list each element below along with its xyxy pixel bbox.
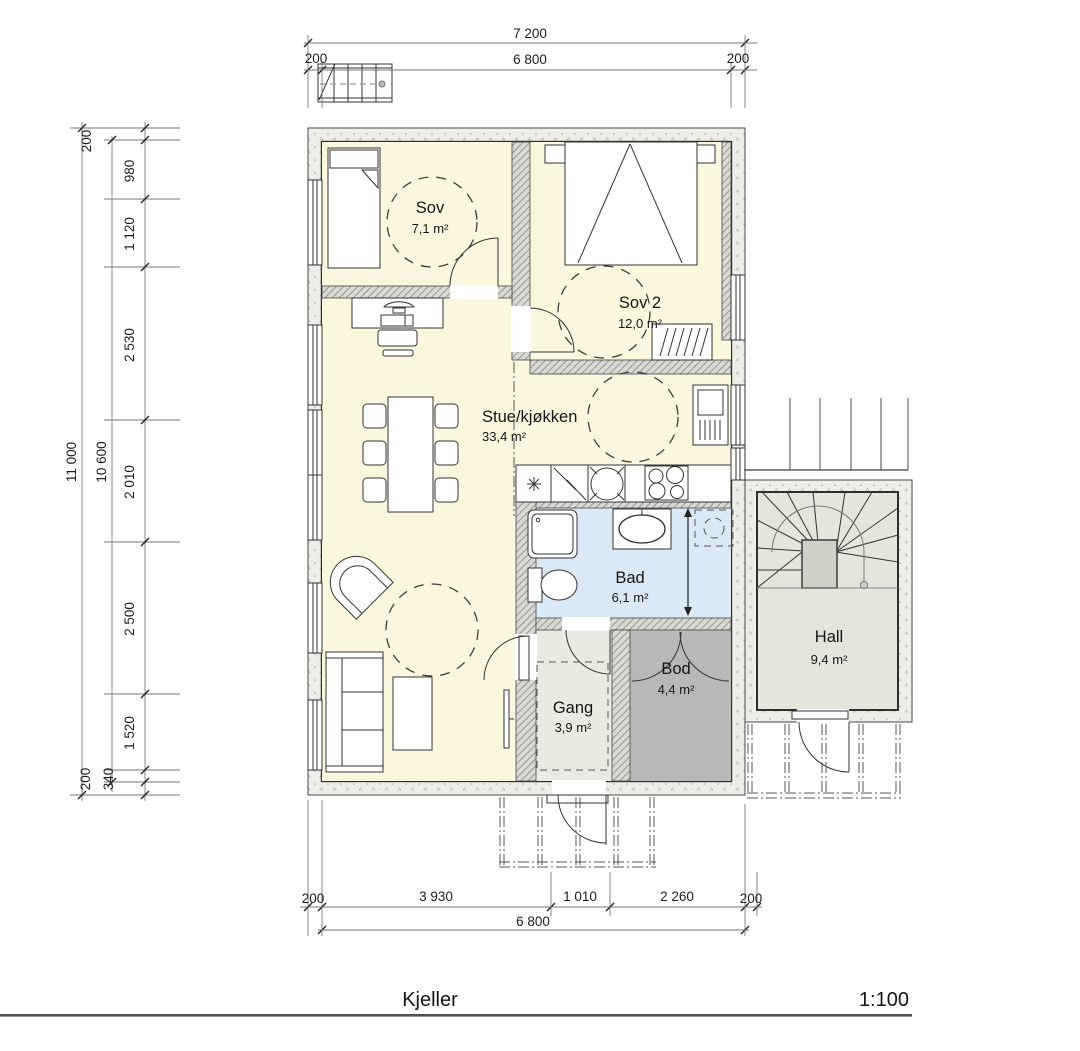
fridge-icon xyxy=(693,385,728,445)
svg-text:200: 200 xyxy=(302,891,325,906)
window xyxy=(731,275,745,340)
dim-top-overall: 7 200 xyxy=(513,26,547,41)
window xyxy=(308,583,322,653)
room-sov2-label: Sov 2 xyxy=(619,294,661,312)
room-gang-area: 3,9 m² xyxy=(555,720,593,735)
freezer-icon xyxy=(527,477,541,491)
title-rule xyxy=(0,1014,912,1017)
svg-text:2 530: 2 530 xyxy=(122,328,137,362)
window xyxy=(308,325,322,405)
dim-left-overall: 11 000 xyxy=(64,442,79,482)
svg-text:980: 980 xyxy=(122,160,137,183)
kitchen-counter xyxy=(516,465,731,502)
room-sov-area: 7,1 m² xyxy=(412,221,450,236)
svg-text:2 260: 2 260 xyxy=(660,889,694,904)
single-bed xyxy=(328,148,380,268)
svg-text:340: 340 xyxy=(101,768,116,791)
svg-text:3 930: 3 930 xyxy=(419,889,453,904)
room-bad-label: Bad xyxy=(615,569,644,587)
room-bod-label: Bod xyxy=(661,660,690,678)
svg-text:200: 200 xyxy=(740,891,763,906)
toilet-icon xyxy=(528,568,577,602)
svg-text:2 010: 2 010 xyxy=(122,465,137,499)
svg-text:200: 200 xyxy=(78,768,93,791)
svg-text:200: 200 xyxy=(79,130,94,153)
door-swing xyxy=(547,795,608,845)
room-bod-area: 4,4 m² xyxy=(658,682,696,697)
svg-text:1 520: 1 520 xyxy=(122,716,137,750)
room-stue-area: 33,4 m² xyxy=(482,429,527,444)
window xyxy=(308,700,322,770)
dim-bottom-inner: 6 800 xyxy=(516,914,550,929)
svg-text:1 120: 1 120 xyxy=(122,217,137,251)
window xyxy=(731,448,745,480)
sheet-scale: 1:100 xyxy=(859,989,909,1011)
sheet-title: Kjeller xyxy=(402,989,458,1011)
room-bad-area: 6,1 m² xyxy=(612,590,650,605)
sofa xyxy=(326,652,383,772)
room-gang-label: Gang xyxy=(553,699,593,717)
dining-table xyxy=(363,397,458,512)
room-stue-label: Stue/kjøkken xyxy=(482,408,577,426)
deck-above-hall xyxy=(744,398,908,470)
window xyxy=(308,410,322,540)
sink-vanity-icon xyxy=(613,509,671,549)
window xyxy=(731,385,745,445)
stove-icon xyxy=(645,466,688,500)
dim-left-inner: 10 600 xyxy=(94,441,109,482)
room-hall-label: Hall xyxy=(815,628,843,646)
floor-plan-sheet: 7 200 200 6 800 200 11 000 10 600 200 98… xyxy=(0,0,1080,1051)
shower-icon xyxy=(528,510,577,558)
svg-text:1 010: 1 010 xyxy=(563,889,597,904)
room-hall-floor xyxy=(757,492,898,710)
svg-text:2 500: 2 500 xyxy=(122,602,137,636)
room-sov-label: Sov xyxy=(416,199,445,217)
dim-top-inner: 6 800 xyxy=(513,52,547,67)
dim-top-left: 200 xyxy=(305,51,328,66)
double-bed xyxy=(545,142,715,265)
porch-front xyxy=(499,797,656,867)
title-block: Kjeller 1:100 xyxy=(0,989,912,1017)
porch-hall xyxy=(747,724,901,798)
room-hall-area: 9,4 m² xyxy=(811,652,849,667)
dim-top-right: 200 xyxy=(727,51,750,66)
window xyxy=(308,180,322,265)
coffee-table xyxy=(393,677,432,750)
floor-plan-drawing: 7 200 200 6 800 200 11 000 10 600 200 98… xyxy=(0,0,1080,1051)
room-bod-floor xyxy=(630,630,731,781)
room-sov2-area: 12,0 m² xyxy=(618,316,663,331)
